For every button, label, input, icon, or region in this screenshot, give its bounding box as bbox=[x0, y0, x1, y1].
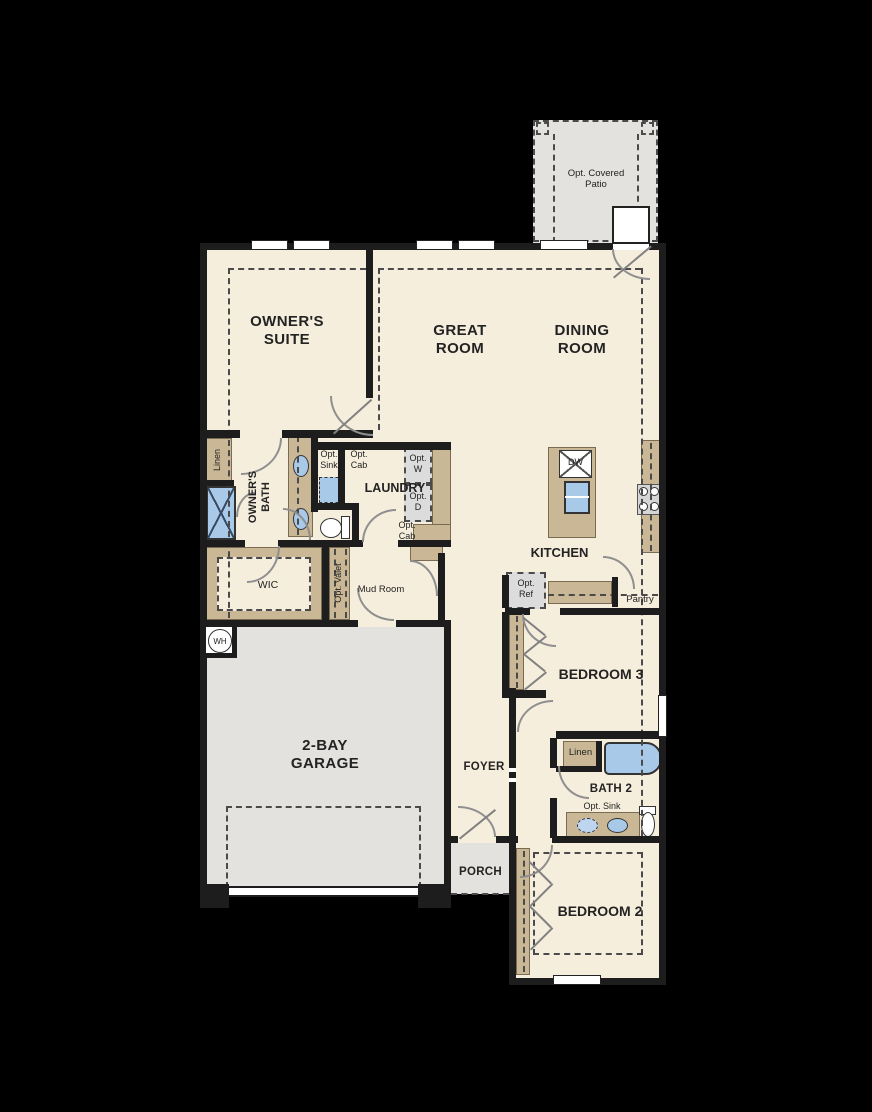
label-opt-sink-laundry: Opt. Sink bbox=[313, 449, 345, 470]
wall bbox=[560, 608, 666, 615]
bath2-toilet-bowl bbox=[641, 812, 655, 837]
wall bbox=[200, 243, 207, 900]
wall bbox=[509, 836, 518, 843]
patio-post bbox=[536, 122, 549, 135]
ceiling-line bbox=[228, 268, 366, 270]
counter-line bbox=[650, 443, 652, 551]
room-label-bedroom2: BEDROOM 2 bbox=[544, 903, 656, 920]
room-label-garage: 2-BAY GARAGE bbox=[262, 737, 388, 772]
wall bbox=[322, 547, 329, 620]
cased-opening-mark bbox=[509, 778, 516, 782]
label-opt-valet: Opt. Valet bbox=[333, 551, 345, 615]
room-label-wic: WIC bbox=[240, 579, 296, 591]
room-label-owners-suite: OWNER'S SUITE bbox=[212, 313, 362, 348]
label-opt-ref: Opt. Ref bbox=[508, 578, 544, 599]
window bbox=[553, 975, 601, 985]
owners-shower bbox=[206, 486, 236, 540]
label-linen-owners: Linen bbox=[212, 435, 224, 485]
label-dishwasher: DW bbox=[562, 457, 589, 468]
room-label-dining-room: DINING ROOM bbox=[522, 322, 642, 357]
garage-door-opening bbox=[229, 888, 418, 895]
room-label-foyer: FOYER bbox=[454, 761, 514, 775]
water-heater-label: WH bbox=[213, 637, 226, 646]
bath2-opt-sink-oval bbox=[577, 818, 598, 833]
room-label-bath2: BATH 2 bbox=[581, 783, 641, 797]
label-opt-cab-upper: Opt. Cab bbox=[343, 449, 375, 470]
owners-toilet-bowl bbox=[320, 518, 342, 538]
wall bbox=[396, 620, 451, 627]
wall bbox=[502, 612, 509, 694]
label-linen-bath2: Linen bbox=[563, 747, 598, 758]
room-label-porch: PORCH bbox=[452, 866, 509, 880]
wall bbox=[200, 620, 358, 627]
room-label-kitchen: KITCHEN bbox=[517, 545, 602, 560]
wall bbox=[550, 798, 557, 838]
wall bbox=[496, 836, 510, 843]
ceiling-line bbox=[378, 268, 641, 270]
room-label-pantry: Pantry bbox=[617, 594, 663, 605]
room-label-patio: Opt. Covered Patio bbox=[552, 168, 640, 190]
room-label-bedroom3: BEDROOM 3 bbox=[545, 666, 657, 683]
water-heater: WH bbox=[208, 629, 232, 653]
owners-toilet-tank bbox=[341, 516, 350, 539]
window bbox=[658, 695, 667, 737]
label-opt-washer: Opt. W bbox=[404, 453, 432, 474]
floor-plan: WH Opt. Covered Patio OWNER'S SUITE GREA… bbox=[0, 0, 872, 1112]
wall bbox=[322, 540, 362, 547]
owners-sink-1 bbox=[293, 455, 309, 477]
patio-door-leaf bbox=[612, 206, 650, 244]
wall bbox=[556, 731, 666, 739]
wall bbox=[444, 620, 451, 908]
porch-edge bbox=[451, 893, 509, 895]
wall bbox=[444, 836, 458, 843]
garage-door-outline bbox=[226, 806, 421, 888]
room-label-owners-bath: OWNER'S BATH bbox=[247, 452, 277, 542]
window bbox=[251, 240, 288, 250]
bath2-sink-oval bbox=[607, 818, 628, 833]
window bbox=[416, 240, 453, 250]
window bbox=[458, 240, 495, 250]
ceiling-line bbox=[378, 268, 380, 430]
closet-line bbox=[516, 616, 518, 688]
wall bbox=[200, 884, 229, 908]
valet-line bbox=[345, 549, 347, 618]
bath2-tub bbox=[604, 742, 662, 775]
label-opt-sink-bath2: Opt. Sink bbox=[576, 801, 628, 812]
wall bbox=[552, 836, 666, 843]
wall bbox=[311, 430, 318, 512]
window bbox=[293, 240, 330, 250]
wall bbox=[438, 553, 445, 620]
island-sink-divider bbox=[565, 496, 589, 498]
wall bbox=[206, 540, 245, 547]
wall bbox=[550, 738, 557, 768]
patio-post bbox=[641, 122, 654, 135]
label-opt-cab-lower: Opt. Cab bbox=[391, 520, 423, 541]
room-label-mud-room: Mud Room bbox=[348, 584, 414, 595]
wall bbox=[366, 249, 373, 398]
label-opt-dryer: Opt. D bbox=[404, 491, 432, 512]
room-label-great-room: GREAT ROOM bbox=[398, 322, 522, 357]
window bbox=[540, 240, 588, 250]
